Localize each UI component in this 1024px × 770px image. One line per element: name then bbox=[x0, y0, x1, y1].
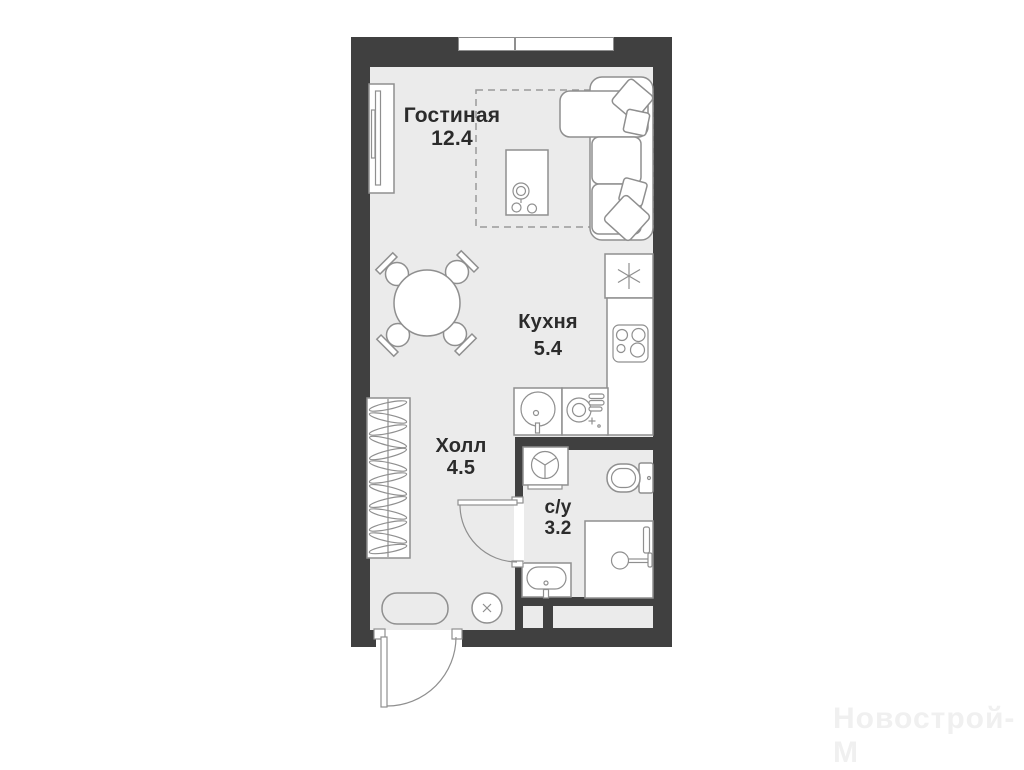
room-area-kitchen: 5.4 bbox=[534, 338, 562, 360]
dining-set bbox=[376, 251, 478, 356]
room-label-bathroom: с/у 3.2 bbox=[488, 498, 628, 540]
room-label-hall: Холл 4.5 bbox=[391, 435, 531, 479]
bathroom-sink bbox=[522, 563, 571, 598]
stool bbox=[472, 593, 502, 623]
dining-table bbox=[394, 270, 460, 336]
fridge bbox=[605, 254, 653, 298]
shower-head-icon bbox=[612, 552, 629, 569]
hob-icon bbox=[613, 325, 648, 362]
dishwasher bbox=[562, 388, 608, 435]
side-table bbox=[506, 150, 548, 215]
kitchen-sink bbox=[514, 388, 562, 435]
room-label-living: Гостиная 12.4 bbox=[382, 104, 522, 150]
entry-door bbox=[374, 629, 462, 707]
door-leaf bbox=[381, 637, 387, 707]
room-label-kitchen: Кухня 5.4 bbox=[478, 309, 618, 363]
rug bbox=[382, 593, 448, 624]
room-area-living: 12.4 bbox=[431, 127, 473, 150]
floor-plan: Гостиная 12.4 Кухня 5.4 Холл 4.5 с/у 3.2… bbox=[0, 0, 1024, 768]
toilet bbox=[607, 463, 653, 493]
room-area-hall: 4.5 bbox=[447, 457, 475, 479]
sofa bbox=[560, 77, 654, 242]
watermark: Новострой-М bbox=[833, 702, 1024, 770]
room-area-bathroom: 3.2 bbox=[544, 518, 571, 539]
